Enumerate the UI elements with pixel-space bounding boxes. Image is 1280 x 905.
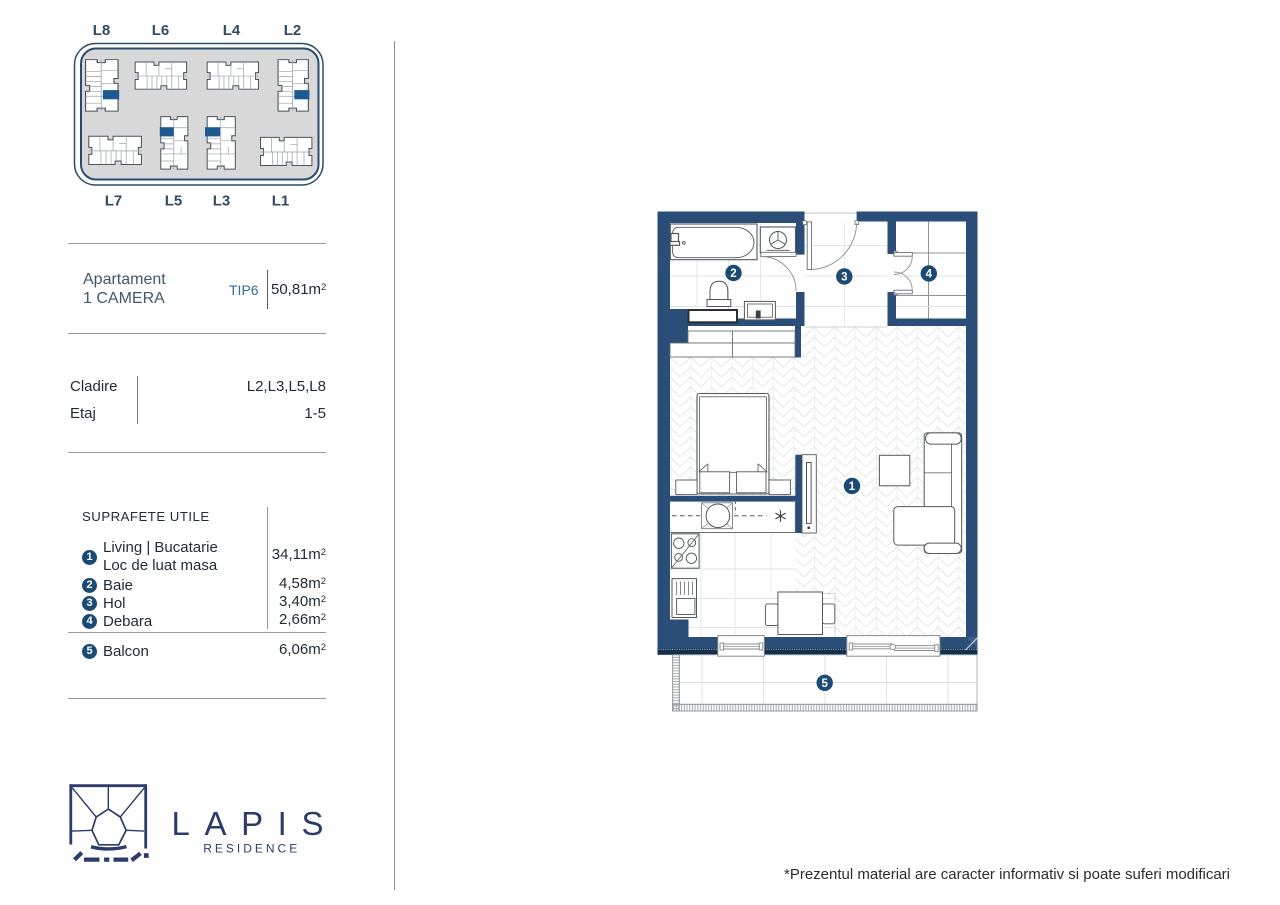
svg-text:3: 3	[841, 272, 847, 284]
svg-text:L4: L4	[223, 22, 241, 39]
svg-text:1: 1	[849, 481, 856, 493]
svg-text:L7: L7	[105, 193, 123, 210]
svg-text:2: 2	[730, 268, 736, 280]
svg-text:L6: L6	[152, 22, 170, 39]
svg-text:L5: L5	[165, 193, 183, 210]
svg-text:L3: L3	[213, 193, 231, 210]
svg-text:LAPIS: LAPIS	[172, 805, 339, 842]
svg-text:4: 4	[926, 269, 933, 281]
svg-text:L8: L8	[93, 22, 111, 39]
svg-text:L2: L2	[284, 22, 302, 39]
svg-text:L1: L1	[272, 193, 290, 210]
svg-text:5: 5	[821, 678, 828, 690]
svg-text:RESIDENCE: RESIDENCE	[203, 842, 300, 856]
